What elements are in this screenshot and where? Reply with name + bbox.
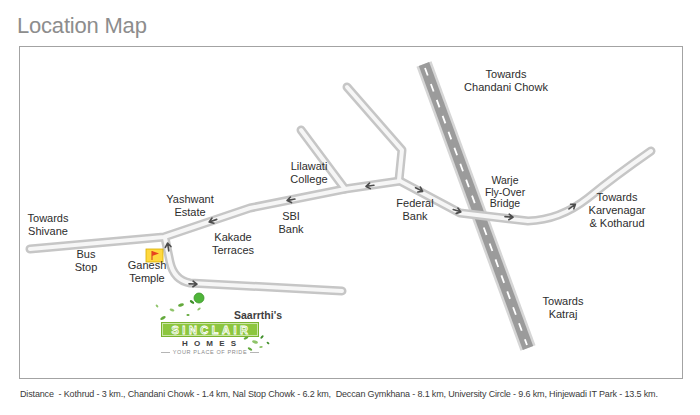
project-location-dot-icon xyxy=(194,293,204,303)
label-towards-karvenagar-kotharud: Towards Karvenagar & Kotharud xyxy=(589,191,646,230)
label-towards-chandani-chowk: Towards Chandani Chowk xyxy=(464,68,548,93)
logo-homes-text: H O M E S xyxy=(161,339,259,348)
label-sbi-bank: SBI Bank xyxy=(278,210,303,235)
label-warje-flyover-bridge: Warje Fly-Over Bridge xyxy=(485,175,525,210)
distance-note: Distance - Kothrud - 3 km., Chandani Cho… xyxy=(20,389,658,399)
logo-nameplate: SINCLAIR xyxy=(161,322,259,337)
label-kakade-terraces: Kakade Terraces xyxy=(212,231,254,256)
tagline-rule-right xyxy=(250,352,259,353)
label-yashwant-estate: Yashwant Estate xyxy=(166,193,214,218)
logo-tagline: YOUR PLACE OF PRIDE xyxy=(161,349,259,355)
label-lilawati-college: Lilawati College xyxy=(290,160,327,186)
label-towards-shivane: Towards Shivane xyxy=(28,212,69,238)
label-towards-katraj: Towards Katraj xyxy=(543,295,584,320)
tagline-rule-left xyxy=(161,352,170,353)
road-center-lines xyxy=(30,87,651,291)
label-bus-stop: Bus Stop xyxy=(75,248,98,273)
sinclair-homes-logo: Saarrthi's SINCLAIR H O M E S YOUR PLACE… xyxy=(150,309,282,355)
label-federal-bank: Federal Bank xyxy=(396,197,433,222)
label-ganesh-temple: Ganesh Temple xyxy=(128,259,167,284)
logo-brand-name: SINCLAIR xyxy=(169,324,252,336)
logo-brand-prefix: Saarrthi's xyxy=(150,309,282,321)
road-federal-branch xyxy=(347,87,402,180)
tagline-text: YOUR PLACE OF PRIDE xyxy=(173,349,247,355)
